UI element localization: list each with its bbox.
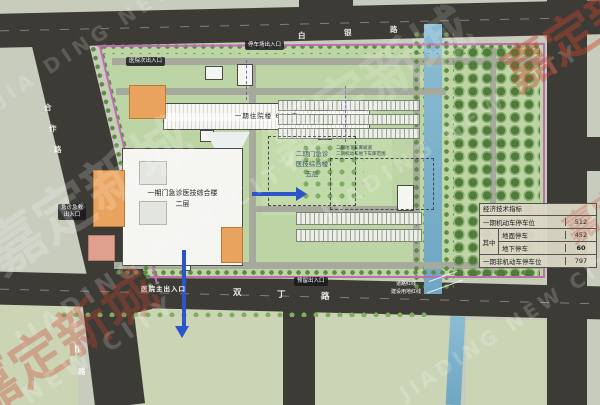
- table-row: 一期非机动车停车位 797: [480, 254, 596, 267]
- road-name-shuangding-char: 路: [321, 290, 330, 302]
- table-row-value: 452: [565, 231, 596, 239]
- indicator-table: 经济技术指标 一期机动车停车位 512 其中 地面停车 452 地下停车 60 …: [479, 203, 597, 268]
- table-row: 地下停车 60: [499, 241, 596, 254]
- road-name-baiyin-char: 白: [298, 30, 306, 41]
- table-row-label: 一期机动车停车位: [480, 217, 565, 227]
- utility-building-f: [237, 64, 253, 86]
- table-row: 地面停车 452: [499, 229, 596, 241]
- trees-roadside-south: [58, 309, 430, 317]
- indicator-table-title: 经济技术指标: [480, 204, 596, 215]
- road-name-shuangding-char: 丁: [277, 288, 286, 300]
- outpatient-courtyard-north: [139, 161, 167, 185]
- service-building-c: [88, 235, 115, 261]
- phase2-garage-outline: [330, 158, 434, 210]
- emergency-entrance-line2: 出入口: [61, 212, 83, 219]
- road-name-baiyin-char: 路: [390, 24, 398, 35]
- stream-bottom-right: [446, 316, 466, 405]
- parking-row: [278, 100, 420, 111]
- road-name-hezuo-lower-char: 合: [70, 320, 78, 331]
- boundary-south: [150, 276, 545, 278]
- phase2-garage-note2: 二期机动车地下车库范围: [336, 152, 386, 157]
- parking-row: [296, 212, 422, 225]
- table-row-label: 一期非机动车停车位: [480, 256, 565, 266]
- outpatient-label-line1: 一期门急诊医技综合楼: [125, 189, 240, 197]
- road-name-shuangding-char: 双: [233, 286, 242, 298]
- road-name-hezuo-upper-char: 作: [49, 123, 57, 134]
- phase2-flow-arrow-head-icon: [296, 187, 307, 201]
- utility-building-e: [205, 66, 223, 80]
- table-row-label: 地下停车: [499, 243, 565, 253]
- block-bottom-right: [466, 320, 546, 405]
- phase2-garage-note1: 二期地下车库坡道: [336, 146, 372, 151]
- utility-line-1: [246, 60, 247, 100]
- service-building-d: [221, 227, 243, 263]
- table-row-value: 797: [565, 257, 596, 265]
- table-group-label: 其中: [480, 229, 499, 254]
- utility-line-2: [345, 86, 346, 142]
- road-name-hezuo-lower-char: 作: [74, 343, 82, 354]
- table-row: 一期机动车停车位 512: [480, 215, 596, 228]
- outpatient-label-line2: 二层: [125, 200, 240, 208]
- table-row-value: 60: [565, 244, 596, 252]
- phase2-flow-arrow: [252, 192, 296, 196]
- table-row-value: 512: [565, 218, 596, 226]
- main-entrance-label: 医院主出入口: [141, 283, 186, 293]
- table-group: 其中 地面停车 452 地下停车 60: [480, 228, 596, 254]
- site-plan-canvas: 一期住院楼 600床 一期门急诊医技综合楼 二层 二期门急诊 医技综合楼 五层 …: [0, 0, 600, 405]
- service-building-a: [129, 85, 166, 119]
- road-name-hezuo-lower-char: 路: [78, 366, 86, 377]
- secondary-entrance-label: 医院次出入口: [126, 57, 165, 66]
- parking-row: [296, 229, 422, 242]
- main-entrance-arrow-head-icon: [175, 326, 189, 338]
- redline-note-site: 建设用地红线: [391, 288, 421, 295]
- road-name-baiyin-char: 银: [344, 27, 352, 38]
- table-row-label: 地面停车: [499, 230, 565, 240]
- parking-entrance-label: 停车场出入口: [245, 41, 284, 50]
- block-bottom-left: [0, 305, 78, 405]
- redline-note-road: 道路红线: [396, 280, 416, 287]
- inner-road-mid-vertical: [249, 64, 256, 269]
- reserved-entrance-label: 预留出入口: [294, 277, 328, 286]
- road-name-hezuo-upper-char: 合: [44, 102, 52, 113]
- road-right-branch: [578, 137, 600, 171]
- road-name-hezuo-upper-char: 路: [54, 144, 62, 155]
- emergency-entrance-line1: 急诊急救: [61, 205, 83, 212]
- parking-row: [278, 114, 420, 125]
- block-bottom-center-east: [310, 305, 452, 405]
- emergency-entrance-label: 急诊急救 出入口: [58, 204, 86, 220]
- service-building-b: [93, 170, 125, 227]
